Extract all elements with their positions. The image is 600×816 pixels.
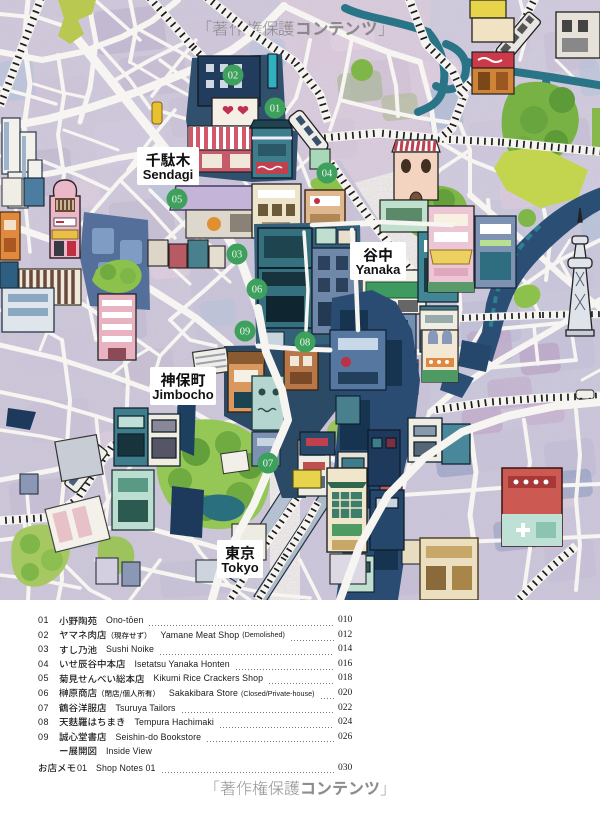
svg-text:07: 07	[263, 459, 274, 470]
svg-text:01: 01	[270, 104, 281, 115]
svg-text:08: 08	[300, 338, 311, 349]
svg-text:Sendagi: Sendagi	[143, 167, 194, 182]
svg-text:02: 02	[228, 71, 239, 82]
svg-text:04: 04	[322, 169, 333, 180]
svg-text:Tokyo: Tokyo	[221, 560, 258, 575]
svg-text:09: 09	[240, 327, 251, 338]
svg-text:05: 05	[172, 195, 183, 206]
svg-text:06: 06	[252, 285, 263, 296]
svg-text:03: 03	[232, 250, 243, 261]
svg-text:Yanaka: Yanaka	[356, 262, 402, 277]
svg-text:Jimbocho: Jimbocho	[152, 387, 213, 402]
